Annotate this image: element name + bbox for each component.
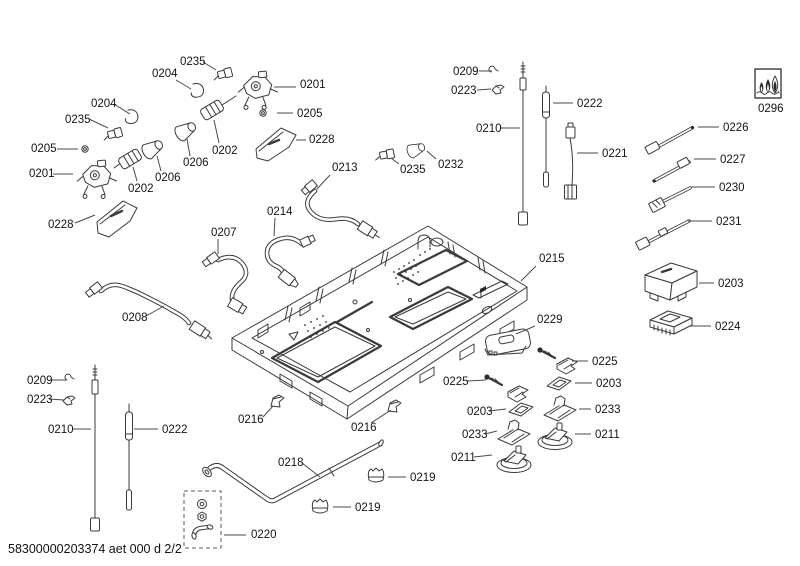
leader-line-0202 <box>133 167 137 181</box>
part-label-0210: 0210 <box>48 424 74 436</box>
part-label-0201: 0201 <box>300 79 326 91</box>
part-label-0202: 0202 <box>128 183 154 195</box>
leader-line-0223 <box>477 89 491 90</box>
part-label-0231: 0231 <box>716 216 742 228</box>
part-label-0211: 0211 <box>595 429 620 441</box>
hose-0213 <box>301 180 382 242</box>
part-label-0205: 0205 <box>31 143 57 155</box>
spark-plug-0210-top <box>519 62 528 225</box>
part-label-0235: 0235 <box>65 114 91 126</box>
pipe-0218 <box>201 439 384 501</box>
cable-0230 <box>648 188 690 213</box>
part-label-0224: 0224 <box>715 321 741 333</box>
cable-0226 <box>645 126 694 154</box>
part-label-0235: 0235 <box>400 164 426 176</box>
part-label-0204: 0204 <box>152 68 178 80</box>
part-label-0232: 0232 <box>438 159 464 171</box>
leader-line-0235 <box>89 119 108 128</box>
hose-0214 <box>267 234 316 289</box>
part-label-0216: 0216 <box>351 422 377 434</box>
part-label-0230: 0230 <box>719 182 745 194</box>
part-label-0218: 0218 <box>278 457 304 469</box>
part-label-0213: 0213 <box>332 162 358 174</box>
cable-0231 <box>635 221 689 250</box>
part-label-0206: 0206 <box>183 157 209 169</box>
part-label-0205: 0205 <box>297 108 323 120</box>
leader-line-0206 <box>157 156 161 171</box>
clip-0219-left <box>312 499 327 513</box>
leader-line-0213 <box>317 175 330 189</box>
part-label-0204: 0204 <box>91 98 117 110</box>
part-label-0220: 0220 <box>251 529 277 541</box>
spark-plug-0210-bottom <box>91 365 100 531</box>
part-label-0296: 0296 <box>758 103 784 115</box>
leader-line-0232 <box>427 151 436 159</box>
gas-valve-assembly-upper <box>173 67 280 142</box>
part-label-0207: 0207 <box>211 227 237 239</box>
bracket-0228-lower <box>97 201 137 237</box>
bracket-0228-upper <box>256 128 296 161</box>
part-label-0203: 0203 <box>718 278 744 290</box>
part-label-0222: 0222 <box>577 98 603 110</box>
clip-0223-bottom <box>63 396 75 405</box>
part-label-0201: 0201 <box>29 168 55 180</box>
part-label-0210: 0210 <box>476 123 502 135</box>
pin-0209-bottom <box>65 374 74 380</box>
leader-line-0211 <box>474 455 492 457</box>
part-label-0219: 0219 <box>410 472 436 484</box>
part-label-0206: 0206 <box>155 172 181 184</box>
leader-line-0228 <box>75 215 95 223</box>
parts-diagram: 0235020402010204023502050205020202280213… <box>0 0 800 566</box>
document-number: 58300000203374 aet 000 d 2/2 <box>8 542 182 556</box>
cable-0221 <box>565 123 577 199</box>
connector-0224 <box>650 311 692 335</box>
cable-0227 <box>653 157 690 182</box>
part-label-0227: 0227 <box>720 154 746 166</box>
part-label-0214: 0214 <box>267 206 293 218</box>
part-label-0223: 0223 <box>451 85 477 97</box>
part-label-0225: 0225 <box>443 376 469 388</box>
leader-line-0216 <box>263 406 273 417</box>
cover-0203-right <box>645 263 697 301</box>
part-label-0216: 0216 <box>238 414 264 426</box>
thermocouple-0222-top <box>543 86 550 187</box>
box-0229 <box>484 328 531 356</box>
perforation-dots <box>304 248 431 338</box>
part-label-0228: 0228 <box>309 134 335 146</box>
leader-line-0225 <box>467 380 486 381</box>
clip-0235-mid <box>374 149 394 161</box>
part-label-0203: 0203 <box>467 406 493 418</box>
part-label-0225: 0225 <box>592 356 618 368</box>
leader-line-0214 <box>274 218 275 236</box>
part-label-0211: 0211 <box>451 452 476 464</box>
part-label-0222: 0222 <box>162 424 188 436</box>
part-label-0233: 0233 <box>462 429 488 441</box>
clip-0219-right <box>368 468 383 482</box>
part-label-0209: 0209 <box>27 375 53 387</box>
leader-line-0218 <box>302 463 320 477</box>
part-label-0209: 0209 <box>453 66 479 78</box>
leader-line-0202 <box>214 120 219 143</box>
clip-0216-left <box>271 395 284 407</box>
part-label-0228: 0228 <box>48 219 74 231</box>
part-label-0229: 0229 <box>537 314 563 326</box>
leader-line-0215 <box>521 266 536 281</box>
part-label-0233: 0233 <box>595 404 621 416</box>
part-label-0226: 0226 <box>723 122 749 134</box>
leader-line-0235 <box>391 158 399 164</box>
hose-0207 <box>202 252 248 315</box>
thermocouple-0222-bottom <box>126 404 133 510</box>
hose-0208 <box>85 282 215 342</box>
part-label-0202: 0202 <box>212 145 238 157</box>
kit-0220 <box>184 491 221 548</box>
part-label-0208: 0208 <box>122 312 148 324</box>
leader-line-0208 <box>146 306 164 316</box>
part-label-0235: 0235 <box>180 56 206 68</box>
burner-pan-0215 <box>232 226 527 419</box>
parts-diagram-page: 0235020402010204023502050205020202280213… <box>0 0 800 566</box>
leader-line-0204 <box>176 80 191 89</box>
part-label-0215: 0215 <box>539 253 565 265</box>
injector-0232 <box>405 140 427 159</box>
part-label-0219: 0219 <box>355 502 381 514</box>
clip-0223-top <box>492 85 504 94</box>
leader-line-0206 <box>187 139 190 156</box>
part-label-0221: 0221 <box>602 148 628 160</box>
part-label-0223: 0223 <box>27 394 53 406</box>
gas-flames-icon <box>755 69 781 98</box>
part-label-0203: 0203 <box>596 378 622 390</box>
